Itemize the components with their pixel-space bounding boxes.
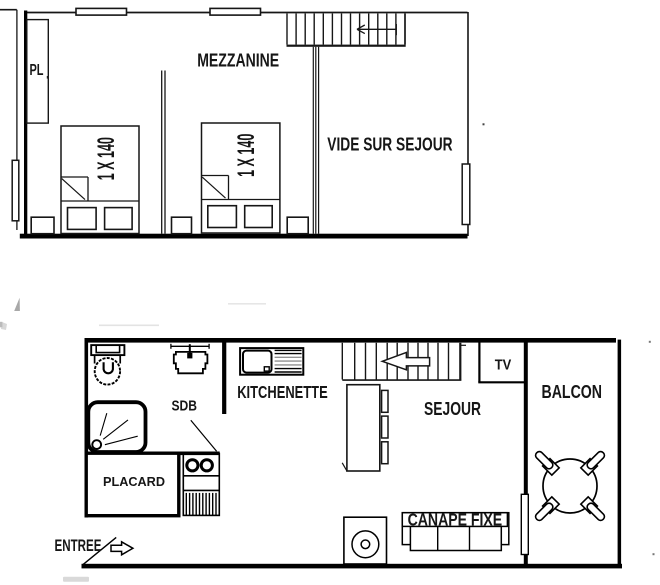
svg-text:PLACARD: PLACARD: [103, 474, 165, 489]
svg-text:VIDE SUR SEJOUR: VIDE SUR SEJOUR: [327, 133, 453, 154]
svg-text:MEZZANINE: MEZZANINE: [197, 50, 279, 71]
svg-text:SDB: SDB: [172, 398, 198, 414]
svg-text:1 X 140: 1 X 140: [233, 134, 260, 177]
svg-text:1 X 140: 1 X 140: [93, 137, 120, 180]
svg-text:BALCON: BALCON: [542, 382, 603, 402]
svg-text:SEJOUR: SEJOUR: [424, 398, 481, 419]
svg-text:PL: PL: [30, 62, 44, 79]
svg-text:KITCHENETTE: KITCHENETTE: [237, 382, 328, 402]
svg-text:ENTREE: ENTREE: [55, 536, 102, 555]
svg-text:CANAPE FIXE: CANAPE FIXE: [408, 510, 503, 530]
svg-text:TV: TV: [495, 357, 512, 373]
